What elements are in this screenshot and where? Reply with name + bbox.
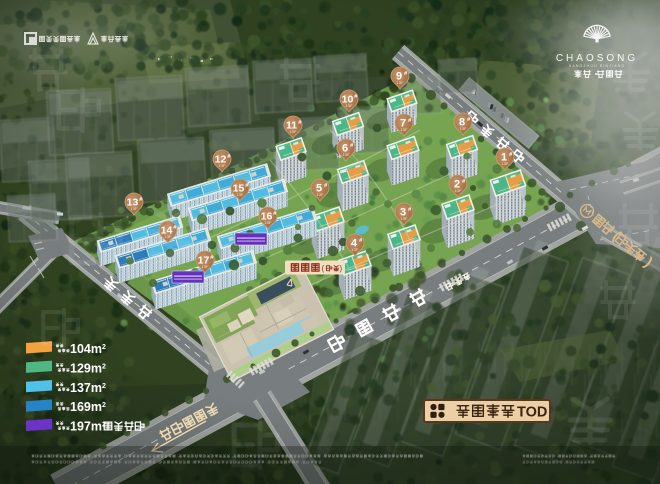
svg-text:#: #: [509, 152, 512, 158]
svg-text:,: ,: [557, 454, 558, 458]
svg-text:13F: 13F: [397, 80, 404, 85]
svg-text:,: ,: [177, 453, 178, 458]
svg-text:#: #: [139, 197, 142, 203]
svg-text:#: #: [227, 154, 230, 160]
svg-text:,: ,: [192, 459, 193, 464]
svg-text:13F: 13F: [202, 264, 209, 269]
svg-text:104m2: 104m2: [70, 342, 106, 356]
svg-text:169m2: 169m2: [70, 400, 106, 414]
svg-text:): ): [340, 264, 343, 273]
svg-text:129m2: 129m2: [70, 361, 106, 375]
svg-text:,: ,: [232, 453, 233, 458]
svg-text:13F: 13F: [346, 103, 353, 108]
svg-text:(: (: [322, 264, 325, 273]
svg-text:,: ,: [301, 459, 302, 464]
svg-text:13F: 13F: [265, 220, 272, 225]
svg-text:13F: 13F: [401, 216, 408, 221]
svg-text:13F: 13F: [237, 192, 244, 197]
svg-text:,: ,: [157, 459, 158, 464]
svg-text:137m2: 137m2: [70, 381, 106, 395]
svg-text:13F: 13F: [460, 126, 467, 131]
svg-text:#: #: [324, 183, 327, 189]
svg-text:13F: 13F: [343, 152, 350, 157]
svg-text:13F: 13F: [352, 247, 359, 252]
svg-text:#: #: [408, 207, 411, 213]
svg-text:,: ,: [92, 453, 93, 458]
svg-text:13F: 13F: [290, 129, 297, 134]
svg-text:13F: 13F: [455, 188, 462, 193]
svg-text:#: #: [354, 94, 357, 100]
svg-text:13F: 13F: [219, 163, 226, 168]
svg-text:#: #: [467, 117, 470, 123]
svg-text:#: #: [245, 183, 248, 189]
svg-text:,: ,: [123, 453, 124, 458]
svg-text:HANGZHOU BINJIANG: HANGZHOU BINJIANG: [569, 64, 625, 68]
svg-text:13F: 13F: [317, 192, 324, 197]
svg-text:13F: 13F: [502, 161, 509, 166]
svg-text:#: #: [408, 118, 411, 124]
svg-text:,: ,: [123, 459, 124, 464]
svg-text:13F: 13F: [131, 206, 138, 211]
svg-text:13F: 13F: [401, 127, 408, 132]
svg-text:#: #: [210, 255, 213, 261]
svg-text:,: ,: [266, 459, 267, 464]
svg-text:#: #: [404, 71, 407, 77]
svg-text:,: ,: [589, 454, 590, 458]
svg-text:#: #: [298, 120, 301, 126]
svg-text:,: ,: [564, 460, 565, 464]
svg-text:#: #: [350, 143, 353, 149]
svg-text:TOD: TOD: [517, 405, 547, 421]
svg-text:#: #: [462, 179, 465, 185]
svg-text:,: ,: [88, 459, 89, 464]
svg-text:#: #: [273, 211, 276, 217]
svg-text:#: #: [359, 238, 362, 244]
svg-text:197m2: 197m2: [70, 420, 106, 434]
svg-text:,: ,: [322, 453, 323, 458]
